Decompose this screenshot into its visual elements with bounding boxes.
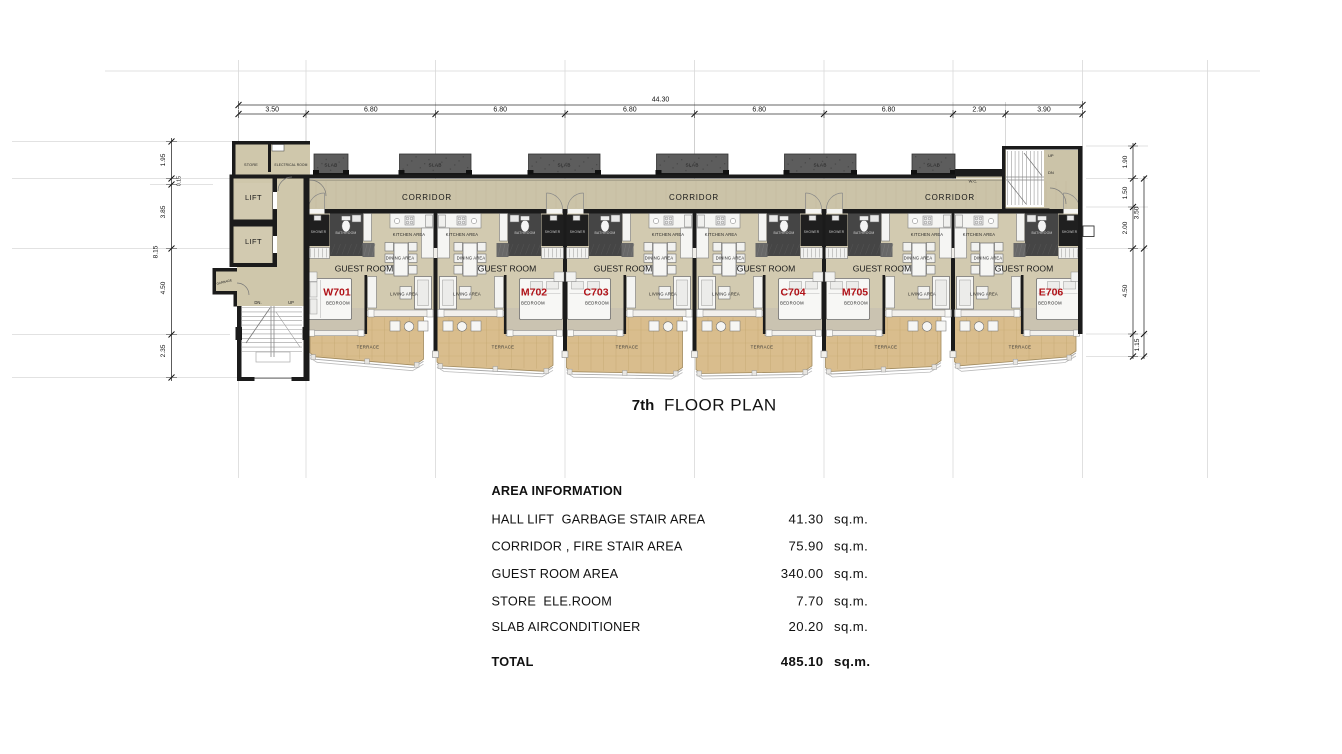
- svg-text:DINING AREA: DINING AREA: [904, 256, 933, 261]
- svg-text:1.50: 1.50: [1122, 186, 1129, 199]
- svg-text:44.30: 44.30: [652, 97, 670, 104]
- svg-text:20.20: 20.20: [788, 619, 823, 634]
- svg-text:HALL LIFT GARBAGE STAIR AREA: HALL LIFT GARBAGE STAIR AREA: [492, 513, 706, 527]
- svg-text:STORE ELE.ROOM: STORE ELE.ROOM: [492, 595, 613, 609]
- svg-text:W.C.: W.C.: [969, 179, 978, 184]
- svg-text:DN: DN: [1048, 170, 1054, 175]
- svg-text:6.80: 6.80: [364, 107, 378, 114]
- svg-text:SLAB: SLAB: [686, 163, 699, 168]
- svg-text:CORRIDOR: CORRIDOR: [402, 193, 452, 202]
- svg-text:KITCHEN AREA: KITCHEN AREA: [393, 232, 425, 237]
- svg-text:3.90: 3.90: [1037, 107, 1051, 114]
- svg-text:SLAB AIRCONDITIONER: SLAB AIRCONDITIONER: [492, 620, 641, 634]
- svg-text:BATHROOM: BATHROOM: [515, 231, 536, 235]
- svg-text:4.50: 4.50: [1122, 284, 1129, 297]
- svg-text:sq.m.: sq.m.: [834, 594, 868, 609]
- svg-text:KITCHEN AREA: KITCHEN AREA: [652, 232, 684, 237]
- svg-text:BEDROOM: BEDROOM: [1038, 301, 1062, 306]
- svg-text:BEDROOM: BEDROOM: [844, 301, 868, 306]
- svg-text:CORRIDOR , FIRE STAIR AREA: CORRIDOR , FIRE STAIR AREA: [492, 540, 683, 554]
- svg-text:ELECTRICAL ROOM: ELECTRICAL ROOM: [275, 163, 308, 167]
- svg-text:7.70: 7.70: [796, 594, 823, 609]
- svg-text:BATHROOM: BATHROOM: [595, 231, 616, 235]
- svg-text:3.50: 3.50: [1134, 206, 1141, 219]
- svg-text:sq.m.: sq.m.: [834, 512, 868, 527]
- svg-text:1.15: 1.15: [1134, 338, 1141, 351]
- svg-text:TERRACE: TERRACE: [751, 345, 774, 350]
- svg-text:AREA INFORMATION: AREA INFORMATION: [492, 484, 623, 498]
- svg-text:4.50: 4.50: [160, 281, 167, 294]
- svg-text:sq.m.: sq.m.: [834, 619, 868, 634]
- svg-text:GUEST ROOM: GUEST ROOM: [478, 264, 537, 274]
- svg-text:TERRACE: TERRACE: [492, 345, 515, 350]
- svg-text:CORRIDOR: CORRIDOR: [925, 193, 975, 202]
- svg-text:BEDROOM: BEDROOM: [780, 301, 804, 306]
- svg-text:485.10: 485.10: [781, 654, 824, 669]
- svg-text:SHOWER: SHOWER: [804, 230, 820, 234]
- svg-text:KITCHEN AREA: KITCHEN AREA: [446, 232, 478, 237]
- svg-text:W701: W701: [323, 287, 351, 299]
- svg-text:DINING AREA: DINING AREA: [457, 256, 486, 261]
- svg-text:GUEST ROOM: GUEST ROOM: [995, 264, 1054, 274]
- svg-text:BEDROOM: BEDROOM: [326, 301, 350, 306]
- svg-text:DN.: DN.: [254, 300, 261, 305]
- svg-text:TERRACE: TERRACE: [875, 345, 898, 350]
- svg-text:BATHROOM: BATHROOM: [774, 231, 795, 235]
- svg-text:UP: UP: [288, 300, 294, 305]
- svg-text:LIVING AREA: LIVING AREA: [970, 292, 998, 297]
- svg-text:M705: M705: [842, 287, 868, 299]
- svg-text:LIVING AREA: LIVING AREA: [908, 292, 936, 297]
- svg-text:SLAB: SLAB: [558, 163, 571, 168]
- svg-text:SHOWER: SHOWER: [311, 230, 327, 234]
- svg-text:6.80: 6.80: [493, 107, 507, 114]
- svg-text:6.80: 6.80: [752, 107, 766, 114]
- svg-text:8.15: 8.15: [153, 245, 160, 258]
- svg-text:3.50: 3.50: [265, 107, 279, 114]
- svg-text:SHOWER: SHOWER: [829, 230, 845, 234]
- svg-text:6.80: 6.80: [623, 107, 637, 114]
- svg-text:C704: C704: [780, 287, 805, 299]
- svg-text:340.00: 340.00: [781, 566, 824, 581]
- svg-text:SLAB: SLAB: [814, 163, 827, 168]
- svg-text:GUEST ROOM: GUEST ROOM: [335, 264, 394, 274]
- svg-text:0.15: 0.15: [177, 176, 183, 186]
- svg-text:DINING AREA: DINING AREA: [716, 256, 745, 261]
- svg-text:E706: E706: [1039, 287, 1064, 299]
- svg-text:LIFT: LIFT: [245, 193, 262, 202]
- svg-text:SHOWER: SHOWER: [545, 230, 561, 234]
- svg-text:STORE: STORE: [244, 163, 258, 167]
- svg-text:FLOOR PLAN: FLOOR PLAN: [664, 396, 777, 415]
- svg-text:BATHROOM: BATHROOM: [1032, 231, 1053, 235]
- svg-text:1.95: 1.95: [160, 153, 167, 166]
- svg-text:sq.m.: sq.m.: [834, 566, 868, 581]
- svg-text:2.00: 2.00: [1122, 221, 1129, 234]
- svg-text:GUEST ROOM: GUEST ROOM: [594, 264, 653, 274]
- svg-text:6.80: 6.80: [882, 107, 896, 114]
- svg-text:2.35: 2.35: [160, 344, 167, 357]
- svg-text:LIFT: LIFT: [245, 237, 262, 246]
- svg-text:TERRACE: TERRACE: [616, 345, 639, 350]
- svg-text:SLAB: SLAB: [324, 163, 337, 168]
- svg-text:SLAB: SLAB: [429, 163, 442, 168]
- svg-text:CORRIDOR: CORRIDOR: [669, 193, 719, 202]
- svg-text:BEDROOM: BEDROOM: [585, 301, 609, 306]
- svg-text:SLAB: SLAB: [927, 163, 940, 168]
- svg-text:75.90: 75.90: [788, 539, 823, 554]
- svg-text:BEDROOM: BEDROOM: [521, 301, 545, 306]
- svg-text:DINING AREA: DINING AREA: [974, 256, 1003, 261]
- svg-text:LIVING AREA: LIVING AREA: [712, 292, 740, 297]
- svg-text:DINING AREA: DINING AREA: [386, 256, 415, 261]
- svg-text:LIVING AREA: LIVING AREA: [390, 292, 418, 297]
- svg-text:SHOWER: SHOWER: [570, 230, 586, 234]
- svg-text:1.90: 1.90: [1122, 155, 1129, 168]
- svg-text:TERRACE: TERRACE: [1009, 345, 1032, 350]
- svg-text:KITCHEN AREA: KITCHEN AREA: [911, 232, 943, 237]
- svg-text:3.85: 3.85: [160, 205, 167, 218]
- svg-text:TOTAL: TOTAL: [492, 655, 534, 669]
- svg-text:sq.m.: sq.m.: [834, 654, 870, 669]
- svg-text:BATHROOM: BATHROOM: [336, 231, 357, 235]
- svg-text:7th: 7th: [632, 397, 655, 414]
- svg-text:2.90: 2.90: [972, 107, 986, 114]
- svg-text:41.30: 41.30: [788, 512, 823, 527]
- svg-text:DINING AREA: DINING AREA: [645, 256, 674, 261]
- svg-text:KITCHEN AREA: KITCHEN AREA: [705, 232, 737, 237]
- svg-text:SHOWER: SHOWER: [1062, 230, 1078, 234]
- svg-text:GUEST ROOM AREA: GUEST ROOM AREA: [492, 567, 619, 581]
- svg-text:LIVING AREA: LIVING AREA: [453, 292, 481, 297]
- svg-text:KITCHEN AREA: KITCHEN AREA: [963, 232, 995, 237]
- svg-text:GUEST ROOM: GUEST ROOM: [853, 264, 912, 274]
- svg-text:LIVING AREA: LIVING AREA: [649, 292, 677, 297]
- svg-text:TERRACE: TERRACE: [357, 345, 380, 350]
- svg-text:UP: UP: [1048, 153, 1054, 158]
- svg-text:M702: M702: [521, 287, 547, 299]
- svg-text:GUEST ROOM: GUEST ROOM: [737, 264, 796, 274]
- svg-text:BATHROOM: BATHROOM: [854, 231, 875, 235]
- svg-text:C703: C703: [583, 287, 608, 299]
- svg-text:sq.m.: sq.m.: [834, 539, 868, 554]
